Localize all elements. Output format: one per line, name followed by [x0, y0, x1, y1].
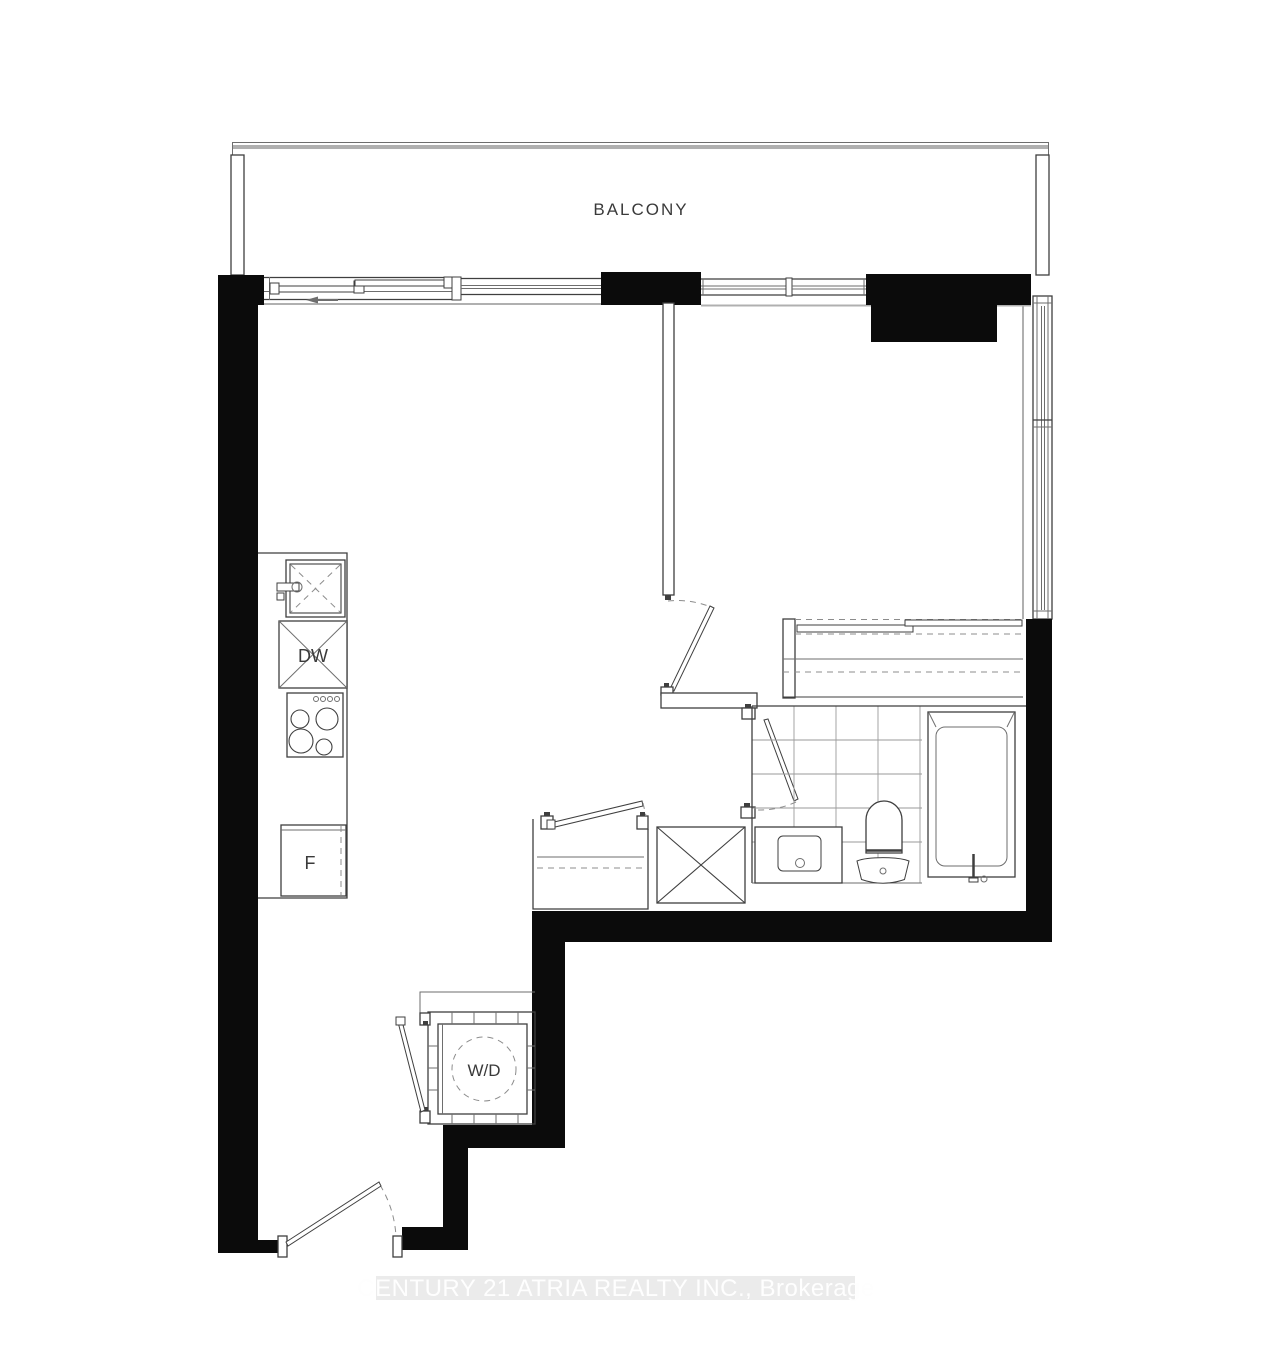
vanity	[755, 827, 842, 883]
window-bedroom-2	[792, 279, 866, 295]
bathroom-north-wall	[661, 693, 757, 708]
wall-pier-bedroom	[871, 305, 997, 342]
bedroom-closet	[783, 619, 1023, 698]
dishwasher-label: DW	[298, 646, 328, 666]
balcony-label: BALCONY	[593, 200, 688, 219]
wall-faces	[264, 304, 1031, 619]
right-window-wall	[1033, 296, 1052, 619]
slider-panel-inner	[272, 286, 363, 292]
balcony: BALCONY	[231, 142, 1049, 275]
watermark: CENTURY 21 ATRIA REALTY INC., Brokerage	[357, 1275, 874, 1302]
bathroom-sink	[778, 836, 821, 871]
laundry-door	[398, 1021, 425, 1112]
faucet-icon	[277, 583, 299, 591]
balcony-rail	[233, 145, 1049, 149]
top-window-wall	[218, 272, 1031, 342]
floor-plan: BALCONY	[0, 0, 1266, 1350]
laundry-closet: W/D	[396, 992, 535, 1124]
foyer-closet	[533, 801, 648, 909]
wall-segment-middle	[601, 272, 701, 305]
entry-south-wall	[402, 1227, 468, 1250]
balcony-pillar-right	[1036, 155, 1049, 275]
kitchen-sink	[277, 560, 345, 617]
kitchen: DW F	[258, 553, 347, 898]
entry-east-wall	[443, 1148, 468, 1227]
entry-door-jamb	[278, 1236, 287, 1257]
entry-door	[286, 1182, 381, 1246]
bedroom-door	[670, 606, 714, 691]
slider-panel-outer	[355, 280, 452, 286]
balcony-pillar-left	[231, 155, 244, 275]
bathroom-door-swing	[757, 802, 796, 810]
washer-dryer-label: W/D	[467, 1061, 500, 1080]
bathroom-south-wall	[532, 911, 1052, 942]
window-mullion	[452, 277, 461, 300]
east-wall	[1026, 619, 1052, 912]
bathroom-door-group	[741, 719, 798, 818]
exterior-walls	[218, 275, 1052, 1253]
fridge-label: F	[305, 853, 316, 873]
bedroom-partition	[663, 303, 714, 691]
window-living	[461, 279, 601, 295]
entry-door-jamb	[393, 1236, 402, 1257]
bedroom-door-swing	[668, 601, 711, 607]
dishwasher: DW	[279, 621, 347, 688]
bathtub	[928, 712, 1015, 882]
partition-wall	[663, 303, 674, 595]
closet-slider-panel	[905, 620, 1022, 626]
laundry-east-wall	[532, 911, 565, 1126]
fridge: F	[281, 825, 346, 896]
laundry-header	[420, 992, 535, 1013]
bathroom-door	[764, 719, 798, 801]
entry	[278, 1182, 402, 1257]
west-wall	[218, 275, 258, 1253]
laundry-south-wall	[443, 1125, 565, 1148]
window-mullion-2	[786, 278, 792, 296]
wall-segment-right	[866, 274, 1031, 305]
window-bedroom-1	[701, 279, 786, 295]
entry-door-swing	[380, 1185, 396, 1237]
hall-shaft-box	[657, 827, 745, 903]
west-wall-foot	[218, 1240, 278, 1253]
toilet-tank	[857, 858, 909, 884]
balcony-slider	[264, 277, 461, 304]
closet-slider-panel	[797, 625, 913, 632]
floor-plan-page: BALCONY	[0, 0, 1266, 1350]
watermark-text: CENTURY 21 ATRIA REALTY INC., Brokerage	[357, 1275, 874, 1302]
foyer-closet-door	[550, 801, 643, 828]
stove-cooktop	[287, 693, 343, 757]
